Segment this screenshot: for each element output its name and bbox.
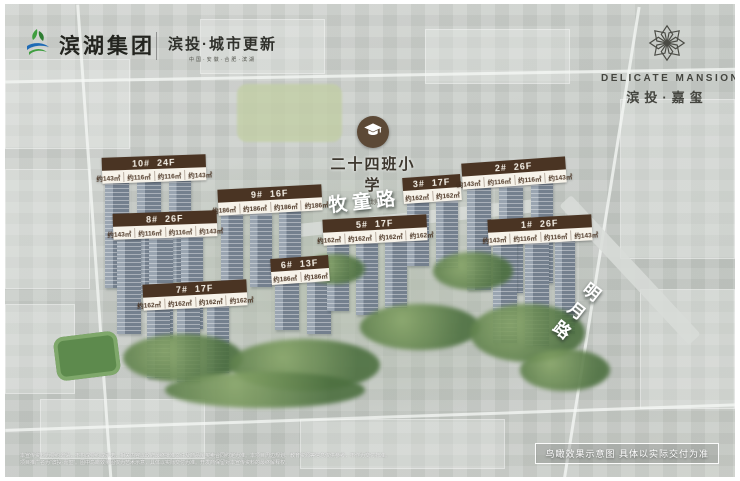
building-floors: 26F [165, 213, 184, 224]
building-floors: 16F [270, 188, 289, 199]
bintou-urban-logo: 滨投·城市更新 中国·安徽·合肥·滨湖 [168, 33, 277, 63]
building-floors: 17F [195, 283, 214, 294]
unit-area: 约116㎡ [134, 227, 165, 238]
trees [360, 304, 480, 350]
tower [221, 209, 243, 283]
unit-area: 约116㎡ [540, 230, 571, 242]
tower [385, 236, 407, 308]
tower [356, 241, 378, 315]
disclaimer-box: 鸟瞰效果示意图 具体以实际交付为准 [535, 443, 719, 464]
binhu-group-logo: 滨湖集团 [23, 26, 155, 63]
building-floors: 13F [299, 258, 318, 269]
tower [250, 213, 272, 287]
building-label-9: 9#16F 约186㎡约186㎡约186㎡约186㎡ [217, 184, 322, 215]
unit-area: 约186㎡ [270, 272, 300, 284]
binhu-group-name: 滨湖集团 [59, 30, 155, 60]
bintou-urban-subtitle: 中国·安徽·合肥·滨湖 [168, 56, 277, 63]
unit-area: 约143㎡ [570, 229, 601, 241]
delicate-mansion-en: DELICATE MANSION [601, 73, 733, 84]
building-label-8: 8#26F 约143㎡约116㎡约116㎡约143㎡ [113, 210, 218, 240]
building-id: 7# [176, 284, 189, 295]
building-id: 1# [521, 219, 534, 230]
graduation-cap-icon [363, 120, 383, 145]
building-id: 10# [132, 158, 150, 169]
unit-area: 约116㎡ [483, 175, 514, 187]
unit-area: 约143㎡ [104, 228, 134, 239]
building-floors: 26F [513, 161, 532, 172]
bintou-urban-name: 滨投·城市更新 [168, 33, 277, 54]
building-label-10: 10#24F 约143㎡约116㎡约116㎡约143㎡ [102, 154, 207, 184]
city-block [5, 169, 90, 289]
unit-area: 约162㎡ [225, 294, 256, 306]
unit-area: 约162㎡ [134, 299, 164, 311]
building-floors: 17F [431, 177, 450, 188]
unit-area: 约143㎡ [453, 177, 483, 189]
building-id: 8# [146, 214, 158, 224]
building-id: 2# [495, 162, 508, 173]
unit-area: 约143㎡ [479, 234, 509, 246]
trees [520, 349, 610, 391]
city-block [425, 29, 570, 84]
tower [117, 232, 141, 334]
logo-divider [156, 32, 157, 60]
building-label-7: 7#17F 约162㎡约162㎡约162㎡约162㎡ [142, 279, 247, 310]
fine-print: 本宣传资料为要约邀请，不构成要约或承诺，相关内容以政府最终批准文件及商品房买卖合… [20, 453, 550, 467]
building-id: 3# [413, 178, 426, 189]
school-badge [357, 116, 389, 148]
unit-area: 约162㎡ [314, 234, 344, 246]
unit-area: 约116㎡ [154, 170, 185, 181]
rosette-emblem-icon [644, 53, 690, 70]
aerial-photo-background: 二十四班小学 (规划中) 牧童路 明月路 10#24F 约143㎡约116㎡约1… [5, 4, 735, 477]
building-floors: 26F [540, 218, 559, 229]
delicate-mansion-logo: DELICATE MANSION 滨投·嘉玺 [601, 20, 733, 106]
aerial-render-poster: 二十四班小学 (规划中) 牧童路 明月路 10#24F 约143㎡约116㎡约1… [0, 0, 740, 481]
unit-area: 约162㎡ [375, 230, 406, 242]
unit-area: 约186㎡ [300, 270, 331, 282]
binhu-tree-icon [23, 26, 53, 63]
unit-area: 约162㎡ [405, 229, 436, 241]
unit-area: 约162㎡ [344, 232, 375, 244]
unit-area: 约186㎡ [270, 200, 301, 212]
fine-print-line2: 项目推广名为“滨投·嘉玺”。图中鸟瞰效果图仅为艺术示意，具体以实际交付为准。开发… [20, 460, 550, 467]
building-floors: 17F [375, 218, 394, 229]
unit-area: 约162㎡ [432, 189, 463, 201]
building-id: 9# [251, 189, 264, 200]
unit-area: 约116㎡ [509, 232, 540, 244]
building-label-5: 5#17F 约162㎡约162㎡约162㎡约162㎡ [322, 214, 427, 245]
unit-area: 约143㎡ [544, 171, 575, 183]
unit-area: 约116㎡ [514, 173, 545, 185]
unit-area: 约186㎡ [300, 199, 331, 211]
city-block [5, 59, 130, 149]
fine-print-line1: 本宣传资料为要约邀请，不构成要约或承诺，相关内容以政府最终批准文件及商品房买卖合… [20, 453, 550, 460]
city-block [620, 99, 735, 259]
unit-area: 约143㎡ [195, 225, 226, 236]
trees [433, 252, 513, 290]
building-label-6: 6#13F 约186㎡约186㎡ [270, 255, 330, 285]
unit-area: 约116㎡ [123, 171, 154, 182]
unit-area: 约116㎡ [165, 226, 196, 237]
trees [165, 372, 365, 408]
sports-field [53, 330, 122, 381]
unit-area: 约143㎡ [184, 169, 215, 180]
unit-area: 约162㎡ [195, 295, 226, 307]
unit-area: 约143㎡ [93, 172, 123, 183]
building-id: 6# [281, 259, 294, 270]
building-id: 5# [356, 219, 369, 230]
building-label-1: 1#26F 约143㎡约116㎡约116㎡约143㎡ [487, 214, 592, 245]
unit-area: 约186㎡ [239, 202, 270, 214]
unit-area: 约162㎡ [164, 297, 195, 309]
unit-area: 约162㎡ [402, 191, 432, 203]
building-floors: 24F [157, 157, 176, 168]
delicate-mansion-cn: 滨投·嘉玺 [601, 87, 733, 106]
